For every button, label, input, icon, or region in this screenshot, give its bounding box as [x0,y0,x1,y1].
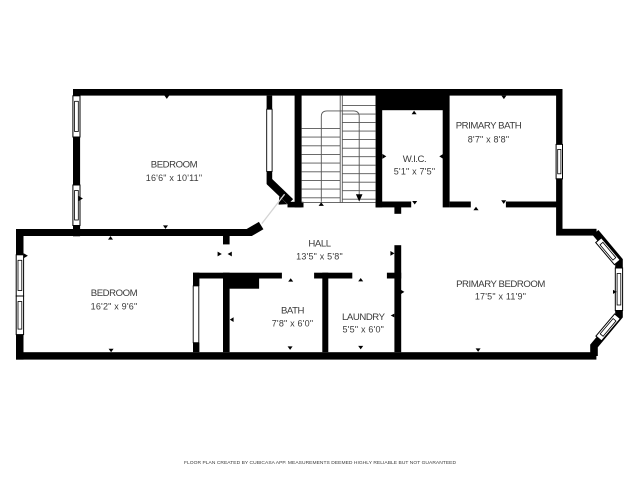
svg-text:PRIMARY BEDROOM: PRIMARY BEDROOM [456,279,545,290]
svg-text:BEDROOM: BEDROOM [91,288,138,299]
svg-text:16'2" x 9'6": 16'2" x 9'6" [91,301,138,311]
svg-text:HALL: HALL [308,239,331,250]
svg-text:5'1" x 7'5": 5'1" x 7'5" [394,166,436,176]
svg-text:8'7" x 8'8": 8'7" x 8'8" [468,135,510,145]
svg-text:PRIMARY BATH: PRIMARY BATH [456,121,522,132]
svg-text:LAUNDRY: LAUNDRY [342,312,386,323]
svg-text:W.I.C.: W.I.C. [403,154,426,165]
svg-text:BATH: BATH [281,305,305,316]
svg-text:16'6" x 10'11": 16'6" x 10'11" [146,173,203,183]
svg-text:7'8" x 6'0": 7'8" x 6'0" [272,318,314,328]
svg-text:BEDROOM: BEDROOM [151,160,198,171]
svg-text:13'5" x 5'8": 13'5" x 5'8" [296,252,343,262]
svg-text:5'5" x 6'0": 5'5" x 6'0" [343,325,385,335]
svg-text:FLOOR PLAN CREATED BY CUBICASA: FLOOR PLAN CREATED BY CUBICASA APP. MEAS… [184,460,457,466]
svg-text:17'5" x 11'9": 17'5" x 11'9" [475,292,526,302]
